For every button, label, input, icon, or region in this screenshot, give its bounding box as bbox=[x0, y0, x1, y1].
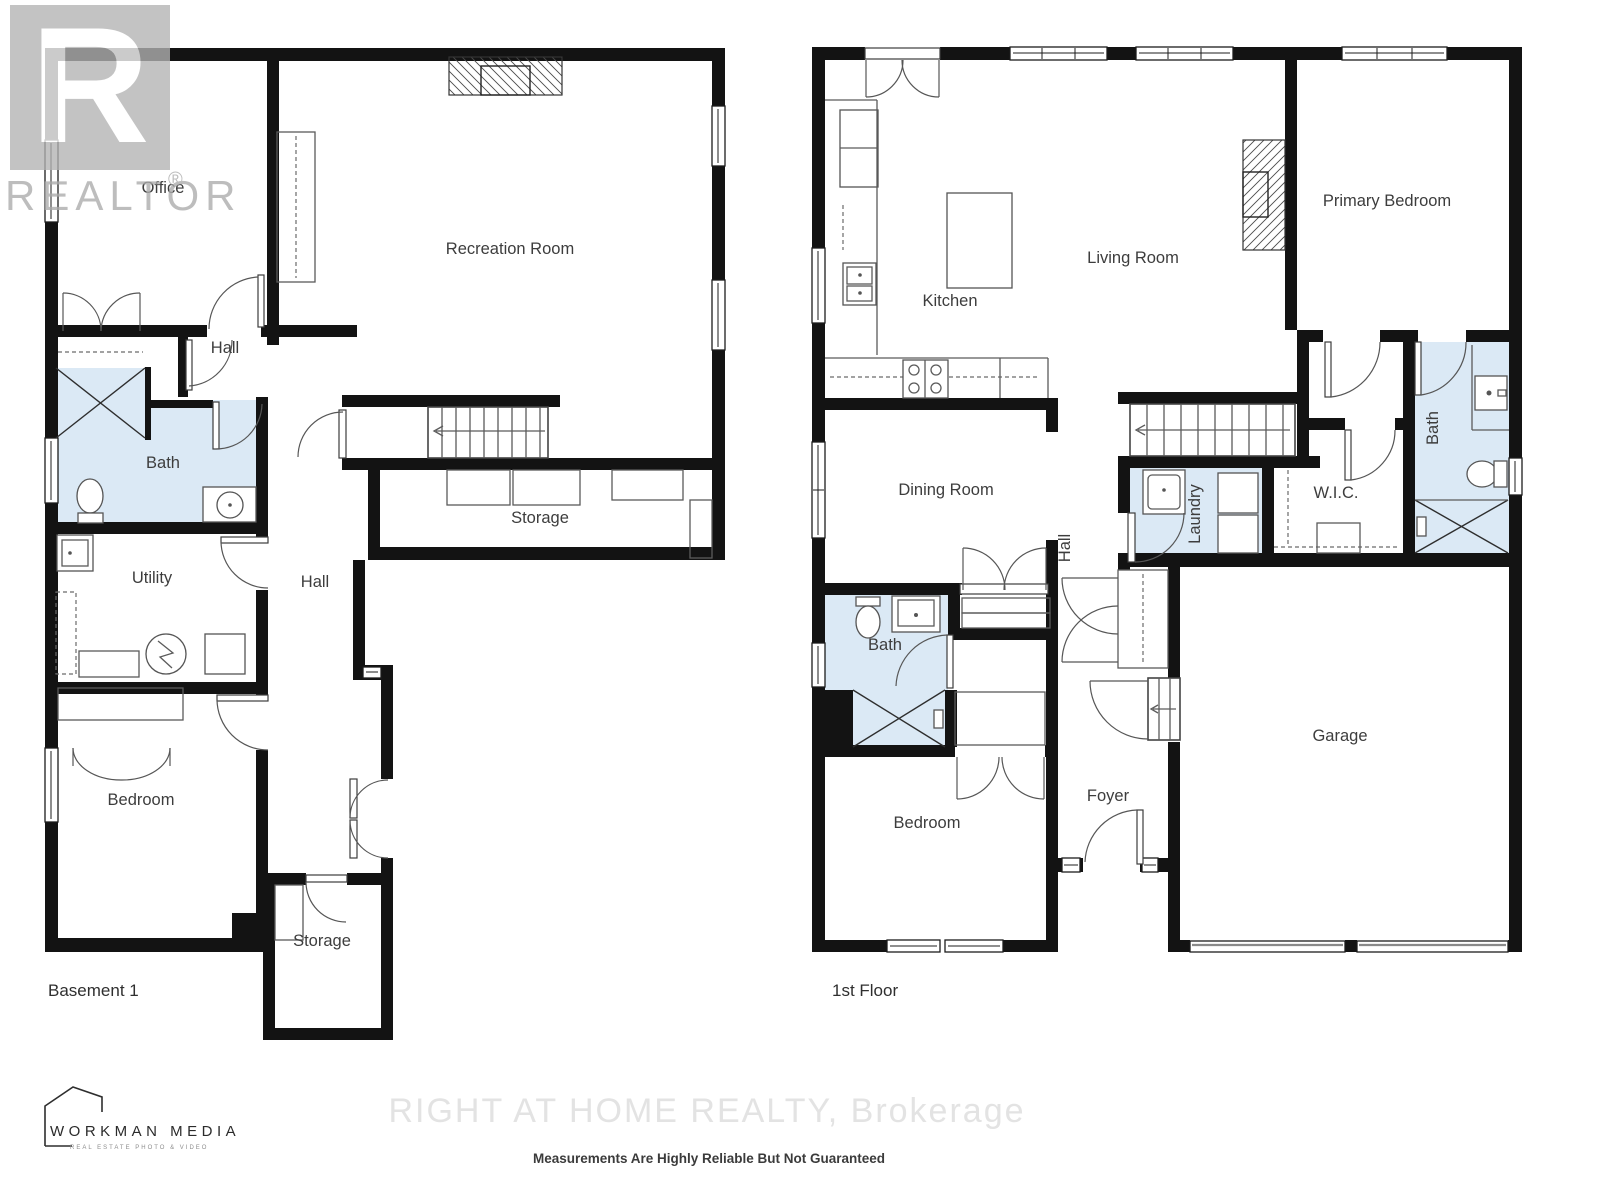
closet-icon bbox=[277, 132, 315, 282]
shelving-icon bbox=[275, 470, 712, 940]
stairs-icon bbox=[1130, 404, 1295, 456]
realtor-logo-text: REALTOR bbox=[5, 172, 242, 219]
realtor-watermark: R REALTOR ® bbox=[5, 0, 242, 219]
room-label-wic: W.I.C. bbox=[1314, 484, 1359, 502]
room-label-bath-primary: Bath bbox=[1424, 411, 1442, 445]
dryer-icon bbox=[1218, 515, 1258, 553]
floorplan-page: Office Recreation Room Hall Bath Utility… bbox=[0, 0, 1600, 1200]
wic-fixtures bbox=[1274, 470, 1398, 553]
room-label-recreation: Recreation Room bbox=[446, 240, 574, 258]
office-closet bbox=[58, 293, 143, 352]
room-label-bedroom: Bedroom bbox=[108, 791, 175, 809]
brokerage-watermark: RIGHT AT HOME REALTY, Brokerage bbox=[388, 1092, 1025, 1130]
water-heater-icon bbox=[146, 634, 186, 674]
room-label-foyer: Foyer bbox=[1087, 787, 1130, 805]
room-label-utility: Utility bbox=[132, 569, 173, 587]
utility-closet bbox=[56, 592, 76, 674]
toilet-icon bbox=[77, 479, 103, 513]
kitchen-fixtures bbox=[825, 100, 1048, 398]
room-label-hall-upper: Hall bbox=[211, 339, 239, 357]
room-label-garage: Garage bbox=[1312, 727, 1367, 745]
toilet-icon bbox=[856, 597, 880, 606]
room-label-living: Living Room bbox=[1087, 249, 1179, 267]
primary-bath-floor bbox=[1415, 342, 1509, 553]
front-door-icon bbox=[1085, 810, 1137, 862]
room-label-storage-lower: Storage bbox=[293, 932, 351, 950]
realtor-logo-letter: R bbox=[30, 0, 149, 177]
workman-logo-subtitle: REAL ESTATE PHOTO & VIDEO bbox=[70, 1145, 208, 1151]
room-label-hall: Hall bbox=[301, 573, 329, 591]
closet-icon bbox=[955, 570, 1168, 745]
room-label-hall: Hall bbox=[1056, 534, 1074, 562]
shower-valve-icon bbox=[934, 710, 943, 728]
shower-valve-icon bbox=[1417, 517, 1426, 536]
washer-icon bbox=[1218, 473, 1258, 513]
fireplace-icon bbox=[1243, 140, 1285, 250]
toilet-icon bbox=[1467, 461, 1497, 487]
room-label-laundry: Laundry bbox=[1186, 483, 1204, 543]
room-label-storage-mid: Storage bbox=[511, 509, 569, 527]
basement-title: Basement 1 bbox=[48, 981, 139, 1000]
disclaimer-text: Measurements Are Highly Reliable But Not… bbox=[533, 1151, 885, 1166]
workman-media-logo: WORKMAN MEDIA REAL ESTATE PHOTO & VIDEO bbox=[45, 1087, 240, 1151]
room-label-kitchen: Kitchen bbox=[922, 292, 977, 310]
room-label-primary-bedroom: Primary Bedroom bbox=[1323, 192, 1451, 210]
floorplan-drawing: Office Recreation Room Hall Bath Utility… bbox=[0, 0, 1600, 1200]
utility-fixtures bbox=[56, 535, 245, 677]
workman-logo-title: WORKMAN MEDIA bbox=[50, 1123, 240, 1140]
kitchen-island bbox=[947, 193, 1012, 288]
first-floor-title: 1st Floor bbox=[832, 981, 898, 1000]
furnace-icon bbox=[205, 634, 245, 674]
patio-door-icon bbox=[866, 60, 903, 97]
room-label-bath-main: Bath bbox=[868, 636, 902, 654]
room-label-dining: Dining Room bbox=[898, 481, 993, 499]
registered-trademark-icon: ® bbox=[168, 169, 183, 191]
fireplace-icon bbox=[449, 57, 562, 95]
room-label-bath: Bath bbox=[146, 454, 180, 472]
bedroom-closet bbox=[58, 688, 183, 780]
garage-man-door-icon bbox=[1090, 681, 1148, 739]
room-label-bedroom: Bedroom bbox=[894, 814, 961, 832]
first-floor-plan: Kitchen Living Room Primary Bedroom Dini… bbox=[812, 47, 1522, 1000]
garage-steps-icon bbox=[1148, 678, 1180, 740]
stairs-icon bbox=[428, 407, 548, 458]
